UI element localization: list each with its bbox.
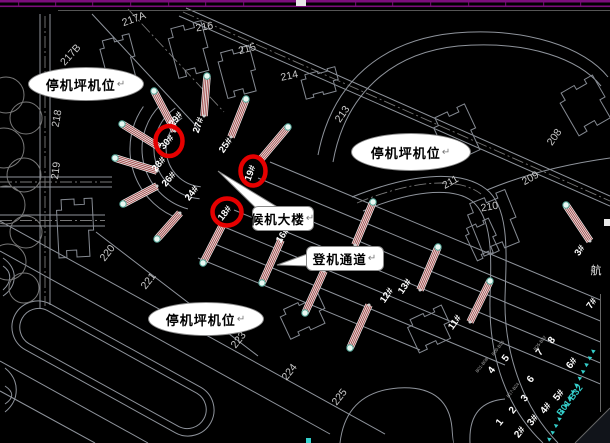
jet-bridge-stripe: [567, 204, 591, 240]
jet-bridge-stripe: [353, 201, 371, 244]
jet-bridge-stripe: [420, 247, 438, 290]
paragraph-mark: ↵: [368, 253, 377, 264]
stand-range-code: B17-B24: [505, 381, 520, 398]
gate-label: 26#: [160, 169, 179, 189]
callout-label: 登机通道: [313, 249, 367, 268]
cad-site-plan: 217A216215214213208209210211217B21821922…: [0, 0, 610, 443]
plot-label: 208: [545, 127, 565, 148]
plot-label: 220: [98, 242, 118, 263]
bridge-head-dot: [204, 73, 210, 79]
bridge-root-dot: [419, 289, 422, 292]
jet-bridge-stripe: [357, 203, 375, 246]
jet-bridge-stripe: [157, 213, 180, 239]
bridge-head-dot: [119, 121, 125, 127]
stand-gate-number: 6#: [564, 355, 580, 371]
stand-triangle-marker: [590, 348, 596, 354]
paragraph-mark: ↵: [237, 314, 246, 325]
callout-label: 停机坪机位: [46, 75, 116, 94]
jet-bridge-stripe: [418, 246, 436, 289]
bridge-head-dot: [487, 278, 493, 284]
jet-bridge-stripe: [566, 205, 590, 241]
stand-number: 6: [525, 374, 537, 386]
bridge-root-dot: [179, 212, 182, 215]
bridge-head-dot: [154, 236, 160, 242]
callout-label: 停机坪机位: [371, 143, 441, 162]
bridge-head-dot: [370, 199, 376, 205]
bridge-head-dot: [285, 124, 291, 130]
jet-bridge-stripe: [231, 99, 246, 137]
circled-gate-label: 30#: [158, 132, 177, 152]
callout-label: 停机坪机位: [166, 310, 236, 329]
plot-label: 214: [280, 68, 300, 83]
gate-label: 27#: [191, 115, 207, 134]
stand-gate-number: 4#: [538, 400, 554, 416]
bridge-head-dot: [151, 88, 157, 94]
gate-label: 3#: [572, 243, 587, 259]
stand-gate-number: 2#: [512, 424, 528, 440]
plot-label: 217B: [58, 42, 83, 68]
bridge-root-dot: [203, 115, 206, 118]
jet-bridge-stripe: [262, 128, 289, 160]
plot-label: 219: [49, 161, 63, 180]
terminal-edge-text: 航: [591, 263, 602, 277]
jet-bridge-stripe: [350, 305, 369, 348]
gate-label: 12#: [378, 285, 397, 305]
plot-label: 224: [280, 361, 300, 382]
bridge-head-dot: [435, 244, 441, 250]
callout-label: 候机大楼: [251, 209, 305, 228]
gate-label: 7#: [584, 296, 599, 312]
plot-label: 213: [333, 104, 353, 125]
stand-triangle-marker: [553, 422, 559, 428]
plot-label: 218: [50, 109, 65, 128]
jet-bridge-stripe: [422, 248, 440, 291]
band-station-marker: [296, 0, 306, 6]
bridge-root-dot: [368, 304, 371, 307]
jet-bridge-stripe: [352, 306, 371, 349]
bridge-head-dot: [347, 345, 353, 351]
jet-bridge-stripe: [158, 214, 181, 240]
plot-label: 221: [139, 270, 159, 291]
plot-label: 209: [520, 169, 541, 188]
stand-triangle-marker: [580, 368, 586, 374]
stand-triangle-marker: [546, 436, 552, 442]
stand-number: 1: [494, 417, 506, 429]
jet-bridge-stripe: [348, 304, 367, 347]
paragraph-mark: ↵: [442, 147, 451, 158]
callout-apron-stands-1: 停机坪机位↵: [28, 67, 144, 101]
callout-apron-stands-2: 停机坪机位↵: [351, 133, 471, 171]
bridge-head-dot: [243, 96, 249, 102]
plot-label: 211: [440, 173, 461, 192]
bridge-root-dot: [589, 240, 592, 243]
callout-boarding-corridor: 登机通道↵: [306, 246, 384, 271]
jet-bridge-stripe: [565, 206, 589, 242]
circled-gate-label: 18#: [216, 203, 235, 223]
boundary-band: [0, 0, 610, 11]
jet-bridge-stripe: [205, 227, 224, 264]
gate-label: 11#: [446, 313, 464, 332]
jet-bridge-stripe: [260, 126, 287, 158]
bridge-head-dot: [112, 155, 118, 161]
jet-bridge-stripe: [203, 226, 222, 263]
jet-bridge-stripe: [355, 202, 373, 245]
paragraph-mark: ↵: [117, 79, 126, 90]
callout-terminal-building: 候机大楼↵: [252, 206, 314, 231]
callout-apron-stands-3: 停机坪机位↵: [148, 302, 264, 336]
jet-bridge-stripe: [201, 225, 220, 262]
paragraph-mark: ↵: [306, 213, 315, 224]
bridge-root-dot: [469, 321, 472, 324]
bridge-head-dot: [259, 280, 265, 286]
bridge-head-dot: [200, 260, 206, 266]
gate-label: 13#: [396, 276, 415, 296]
plot-label: 210: [480, 200, 499, 215]
stand-triangle-marker: [583, 361, 589, 367]
plot-label: 216: [195, 20, 214, 35]
bridge-head-dot: [120, 201, 126, 207]
bridge-head-dot: [302, 310, 308, 316]
jet-bridge-stripe: [156, 212, 179, 238]
bridge-root-dot: [230, 136, 233, 139]
jet-bridge-stripe: [261, 127, 288, 159]
bridge-root-dot: [156, 185, 159, 188]
jet-bridge-stripe: [122, 184, 156, 202]
bridge-head-dot: [563, 202, 569, 208]
gate-label: 25#: [217, 135, 236, 155]
circled-gate-label: 19#: [243, 163, 259, 182]
stand-number: 4: [486, 365, 498, 377]
stand-number: 2: [507, 405, 519, 417]
jet-bridge-stripe: [121, 125, 158, 148]
